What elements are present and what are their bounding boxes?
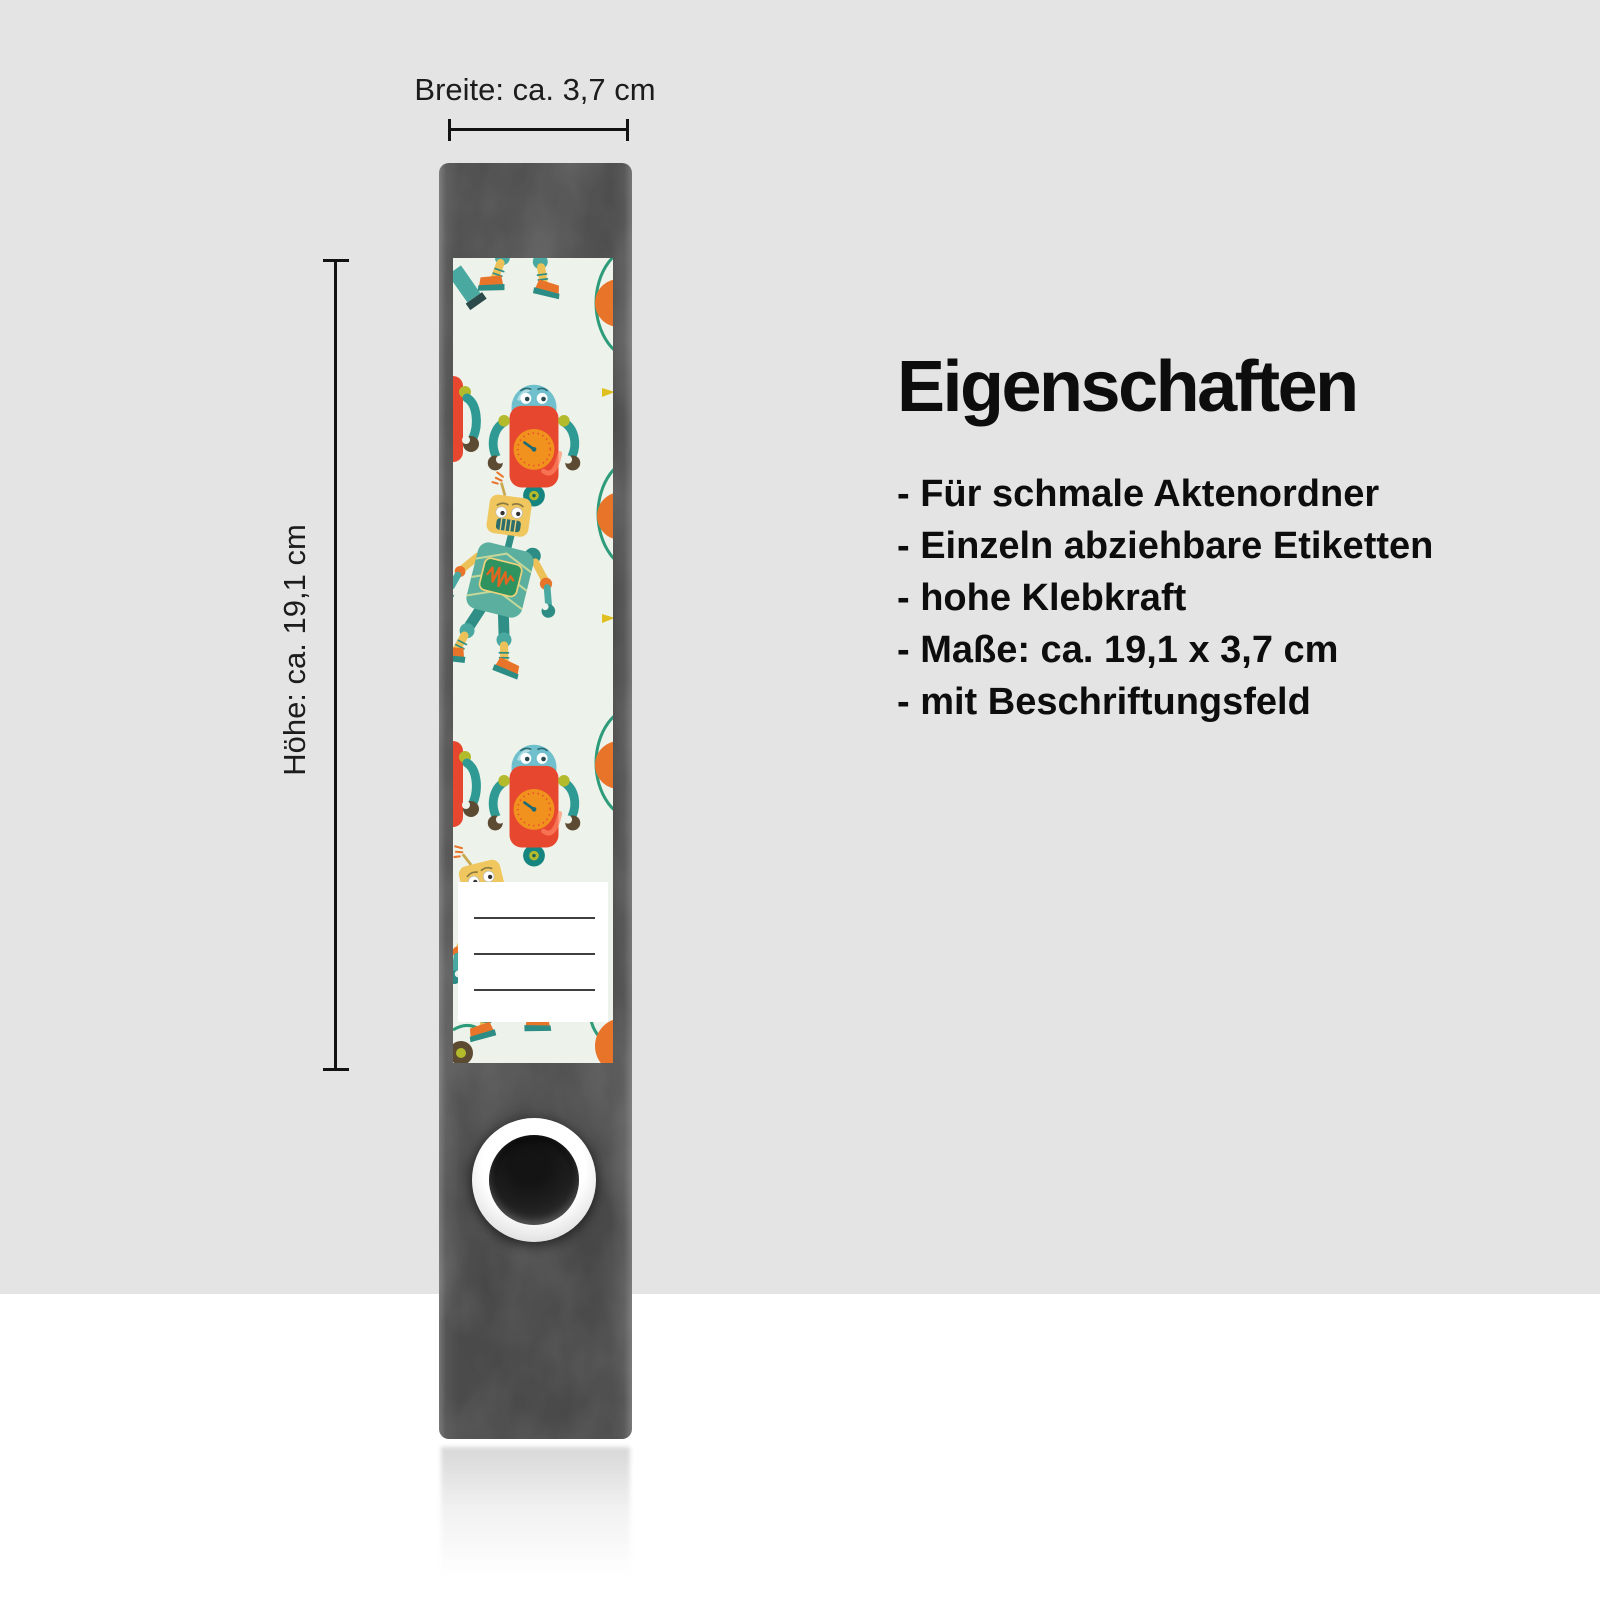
square-robot-legs-icon — [464, 258, 600, 301]
width-dimension-line — [448, 119, 629, 141]
property-item: - hohe Klebkraft — [897, 572, 1557, 624]
height-dimension-label: Höhe: ca. 19,1 cm — [277, 485, 317, 815]
grip-hole-ring — [472, 1118, 596, 1242]
properties-title: Eigenschaften — [897, 350, 1557, 424]
square-robot-icon — [453, 462, 585, 684]
writing-line — [474, 953, 595, 955]
writing-field — [458, 882, 608, 1022]
property-item: - Einzeln abziehbare Etiketten — [897, 520, 1557, 572]
property-item: - Maße: ca. 19,1 x 3,7 cm — [897, 624, 1557, 676]
grip-hole — [489, 1135, 579, 1225]
property-item: - Für schmale Aktenordner — [897, 468, 1557, 520]
binder-reflection — [441, 1447, 630, 1595]
spine-label-sticker — [453, 258, 613, 1063]
partial-clock-robot — [453, 741, 479, 827]
property-item: - mit Beschriftungsfeld — [897, 676, 1557, 728]
writing-line — [474, 989, 595, 991]
width-dimension-label: Breite: ca. 3,7 cm — [385, 72, 685, 108]
binder-spine — [439, 163, 632, 1439]
product-image: Breite: ca. 3,7 cm Höhe: ca. 19,1 cm — [0, 0, 1600, 1600]
properties-list: - Für schmale Aktenordner - Einzeln abzi… — [897, 468, 1557, 728]
height-dimension-line — [323, 259, 349, 1071]
properties-block: Eigenschaften - Für schmale Aktenordner … — [897, 350, 1557, 728]
writing-line — [474, 917, 595, 919]
partial-clock-robot — [453, 376, 479, 462]
clock-robot-icon — [488, 745, 580, 867]
